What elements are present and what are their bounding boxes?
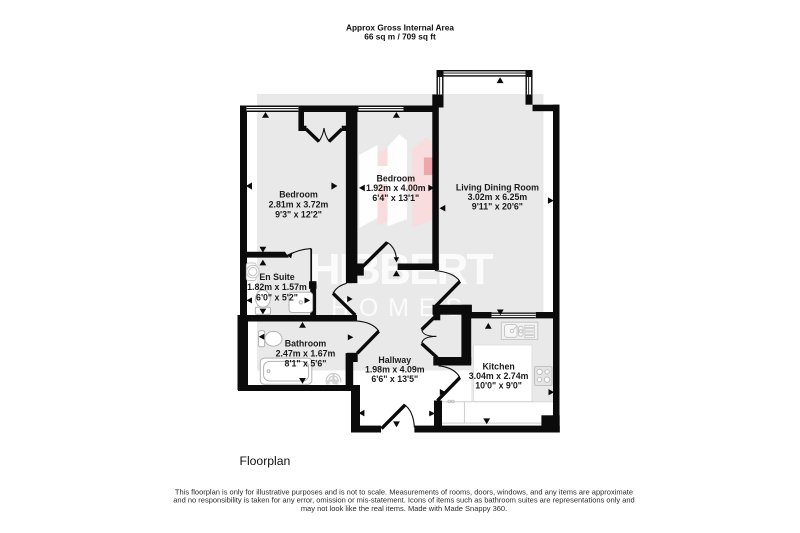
svg-text:En Suite: En Suite <box>259 272 294 282</box>
svg-text:3.04m x 2.74m: 3.04m x 2.74m <box>469 371 529 381</box>
svg-text:may not look like the real ite: may not look like the real items. Made w… <box>301 504 507 513</box>
svg-text:Bedroom: Bedroom <box>376 174 415 184</box>
svg-text:9'3" x 12'2": 9'3" x 12'2" <box>275 210 322 220</box>
svg-text:1.82m x 1.57m: 1.82m x 1.57m <box>247 282 307 292</box>
svg-text:Bedroom: Bedroom <box>279 190 318 200</box>
svg-text:8'1" x 5'6": 8'1" x 5'6" <box>285 359 327 369</box>
svg-text:Living Dining Room: Living Dining Room <box>456 183 539 193</box>
svg-text:66 sq m / 709 sq ft: 66 sq m / 709 sq ft <box>364 31 436 41</box>
svg-text:Bathroom: Bathroom <box>285 338 327 348</box>
svg-text:Kitchen: Kitchen <box>482 361 514 371</box>
svg-text:1.98m x 4.09m: 1.98m x 4.09m <box>365 365 425 375</box>
svg-text:3.02m x 6.25m: 3.02m x 6.25m <box>468 192 528 202</box>
svg-text:10'0" x 9'0": 10'0" x 9'0" <box>475 380 522 390</box>
svg-text:6'4" x 13'1": 6'4" x 13'1" <box>372 193 419 203</box>
svg-text:6'0" x 5'2": 6'0" x 5'2" <box>256 292 298 302</box>
svg-text:Floorplan: Floorplan <box>240 454 291 468</box>
svg-text:1.92m x 4.00m: 1.92m x 4.00m <box>366 183 426 193</box>
svg-text:6'6" x 13'5": 6'6" x 13'5" <box>371 374 418 384</box>
svg-text:Hallway: Hallway <box>378 355 411 365</box>
svg-text:2.81m x 3.72m: 2.81m x 3.72m <box>269 200 329 210</box>
svg-text:9'11" x 20'6": 9'11" x 20'6" <box>472 202 523 212</box>
svg-text:2.47m x 1.67m: 2.47m x 1.67m <box>276 348 336 358</box>
